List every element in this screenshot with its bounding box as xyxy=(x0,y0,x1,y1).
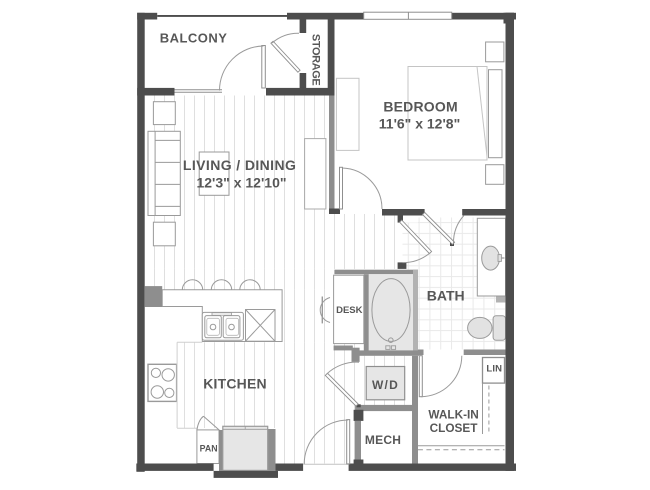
svg-text:MECH: MECH xyxy=(365,433,401,447)
svg-text:BALCONY: BALCONY xyxy=(160,31,228,46)
svg-text:11'6" x 12'8": 11'6" x 12'8" xyxy=(379,116,460,132)
svg-text:KITCHEN: KITCHEN xyxy=(203,376,267,392)
svg-text:BEDROOM: BEDROOM xyxy=(383,99,458,115)
svg-text:STORAGE: STORAGE xyxy=(310,34,322,85)
svg-text:LIVING / DINING: LIVING / DINING xyxy=(183,157,296,173)
svg-text:PAN: PAN xyxy=(200,444,218,454)
svg-text:DESK: DESK xyxy=(336,305,363,316)
svg-text:CLOSET: CLOSET xyxy=(430,421,479,435)
svg-text:WALK-IN: WALK-IN xyxy=(428,408,478,422)
svg-text:W/D: W/D xyxy=(372,378,399,392)
svg-text:LIN: LIN xyxy=(486,364,502,375)
svg-text:12'3" x 12'10": 12'3" x 12'10" xyxy=(196,175,286,191)
svg-text:BATH: BATH xyxy=(427,288,465,304)
